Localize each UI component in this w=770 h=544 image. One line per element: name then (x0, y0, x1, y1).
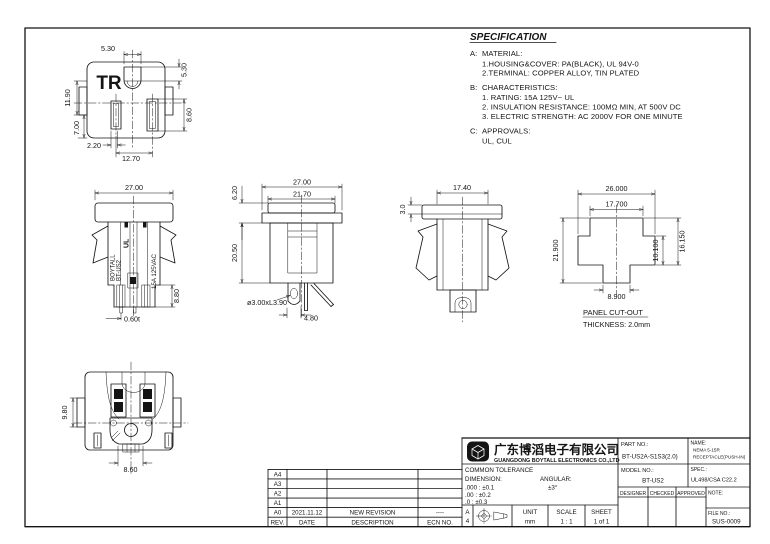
cutout-thickness: THICKNESS: 2.0mm (583, 320, 650, 329)
company-logo (467, 442, 489, 462)
drawing-sheet: TR 5.30 5.30 11.90 7.00 8.60 (0, 0, 770, 544)
dim-hole-width: 5.30 (101, 44, 115, 53)
spec-block: SPECIFICATION A: MATERIAL: 1.HOUSING&COV… (470, 32, 683, 146)
spec-a-heading: MATERIAL: (482, 49, 522, 58)
rev-a0-description: NEW REVISION (350, 510, 396, 517)
rev-a1: A1 (274, 500, 282, 507)
spec-a-label: A: (470, 49, 477, 58)
view-front: 27.00 BOYTALL BT-US2 UL 15A 125VAC (92, 183, 181, 324)
rev-a3: A3 (274, 481, 282, 488)
rev-header-rev: REV. (271, 519, 285, 526)
name-value-1: NEMA 5-15R (693, 448, 720, 453)
part-no-value: BT-US2A-S1S3(2.0) (622, 454, 678, 461)
dim-cutout-tab: 8.900 (608, 292, 626, 301)
designer-label: DESIGNER (620, 491, 647, 497)
dim-pin-thickness: 0.60t (124, 315, 140, 324)
checked-label: CHECKED (650, 491, 675, 497)
dim-hole-height: 5.30 (180, 63, 189, 77)
rev-header-date: DATE (299, 519, 315, 526)
note-label: NOTE: (708, 491, 723, 497)
dim-side-inner-width: 21.70 (293, 190, 311, 199)
dim-lower-left: 7.00 (72, 121, 81, 135)
dimension-label: DIMENSION: (465, 476, 502, 483)
scale-value: 1 : 1 (560, 519, 573, 526)
spec-b1: 1. RATING: 15A 125V~ UL (482, 93, 574, 102)
unit-label: UNIT (523, 509, 538, 516)
dim-latch-flange: 3.0 (398, 205, 407, 215)
dim-tail-height: 8.80 (172, 289, 181, 303)
sheet-label: SHEET (591, 509, 612, 516)
sheet-size-4: 4 (466, 518, 470, 525)
spec-c1: UL, CUL (482, 137, 512, 146)
spec-b-label: B: (470, 83, 477, 92)
sheet-value: 1 of 1 (594, 519, 610, 526)
dim-slot-height: 8.60 (185, 108, 194, 122)
dim-pin-width: 4.80 (304, 314, 318, 323)
tr-marking: TR (96, 73, 122, 94)
view-panel-cutout: 26.000 17.700 21.900 10.100 16.150 8.900… (551, 184, 687, 329)
dim-rear-tab: 9.80 (60, 406, 69, 420)
model-no-label: MODEL NO.: (621, 468, 654, 474)
brand-text-2: BT-US2 (117, 259, 123, 281)
view-rear: 9.80 8.60 (60, 362, 188, 474)
part-no-label: PART NO.: (621, 442, 649, 448)
spec-b2: 2. INSULATION RESISTANCE: 100MΩ MIN, AT … (482, 103, 681, 112)
dim-cutout-h3: 10.100 (651, 240, 660, 262)
cutout-title: PANEL CUT-OUT (583, 308, 643, 317)
dim-slot-offset: 2.20 (87, 141, 101, 150)
dim-front-width: 27.00 (125, 183, 143, 192)
revision-table: A4 A3 A2 A1 A0 2021.11.12 NEW REVISION -… (268, 469, 462, 526)
dim-side-width: 27.00 (293, 178, 311, 187)
view-side-latch: 17.40 3.0 (398, 183, 509, 322)
rev-a4: A4 (274, 472, 282, 479)
angular-value: ±3° (548, 485, 558, 492)
model-no-value: BT-US2 (642, 478, 664, 485)
title-block: 广东博滔电子有限公司 GUANGDONG BOYTALL ELECTRONICS… (462, 438, 750, 527)
dim-cutout-width: 26.000 (606, 184, 628, 193)
hole-callout: ø3.00xL3.90 (247, 298, 287, 307)
rev-a0-ecn: ---- (436, 510, 444, 517)
dim-body-height: 20.50 (230, 244, 239, 262)
rev-a2: A2 (274, 491, 282, 498)
view-side: 27.00 21.70 6.20 20.50 (230, 178, 342, 323)
sheet-size-a: A (465, 509, 470, 516)
rev-a0-date: 2021.11.12 (292, 510, 323, 517)
spec-title: SPECIFICATION (470, 32, 547, 43)
dim-latch-width: 17.40 (453, 183, 471, 192)
file-no-value: SUS-0009 (712, 519, 741, 526)
dim-flange-height: 6.20 (230, 186, 239, 200)
dim-slot-pitch: 12.70 (122, 154, 140, 163)
tolerance-title: COMMON TOLERANCE (465, 467, 533, 474)
dim-upper-left: 11.90 (63, 89, 72, 106)
projection-symbol (477, 509, 508, 524)
scale-label: SCALE (556, 509, 576, 516)
rev-header-description: DESCRIPTION (351, 519, 393, 526)
tolerance-row-2: .00 : ±0.2 (465, 492, 491, 499)
spec-c-heading: APPROVALS: (482, 127, 531, 136)
company-name-en: GUANGDONG BOYTALL ELECTRONICS CO.,LTD (494, 458, 620, 464)
spec-value: UL498/CSA C22.2 (691, 478, 737, 484)
tolerance-row-3: .0 : ±0.3 (465, 499, 488, 506)
rating-text: 15A 125VAC (151, 253, 158, 289)
approved-label: APPROVED (677, 491, 705, 497)
spec-a1: 1.HOUSING&COVER: PA(BLACK), UL 94V-0 (482, 60, 639, 69)
dim-rear-center: 8.60 (124, 465, 138, 474)
unit-value: mm (525, 519, 535, 526)
tolerance-row-1: .000 : ±0.1 (465, 485, 495, 492)
name-label: NAME: (691, 441, 707, 447)
spec-b-heading: CHARACTERISTICS: (482, 83, 557, 92)
spec-label: SPEC.: (691, 467, 707, 473)
spec-a2: 2.TERMINAL: COPPER ALLOY, TIN PLATED (482, 69, 640, 78)
rev-a0: A0 (274, 510, 282, 517)
spec-b3: 3. ELECTRIC STRENGTH: AC 2000V FOR ONE M… (482, 112, 683, 121)
ul-recognized-mark: UL (124, 238, 131, 248)
name-value-2: RECEPTACLE(PUSH-IN) (693, 455, 746, 460)
angular-label: ANGULAR: (540, 476, 572, 483)
file-no-label: FILE NO.: (708, 511, 730, 517)
engineering-drawing: TR 5.30 5.30 11.90 7.00 8.60 (0, 0, 770, 544)
dim-cutout-height: 21.900 (551, 240, 560, 262)
company-name-cn: 广东博滔电子有限公司 (494, 442, 619, 457)
dim-cutout-arm-width: 17.700 (606, 200, 628, 209)
dim-cutout-h2: 16.150 (678, 231, 687, 253)
view-face: TR 5.30 5.30 11.90 7.00 8.60 (63, 44, 194, 163)
rev-header-ecn: ECN NO. (427, 519, 453, 526)
spec-c-label: C: (470, 127, 478, 136)
